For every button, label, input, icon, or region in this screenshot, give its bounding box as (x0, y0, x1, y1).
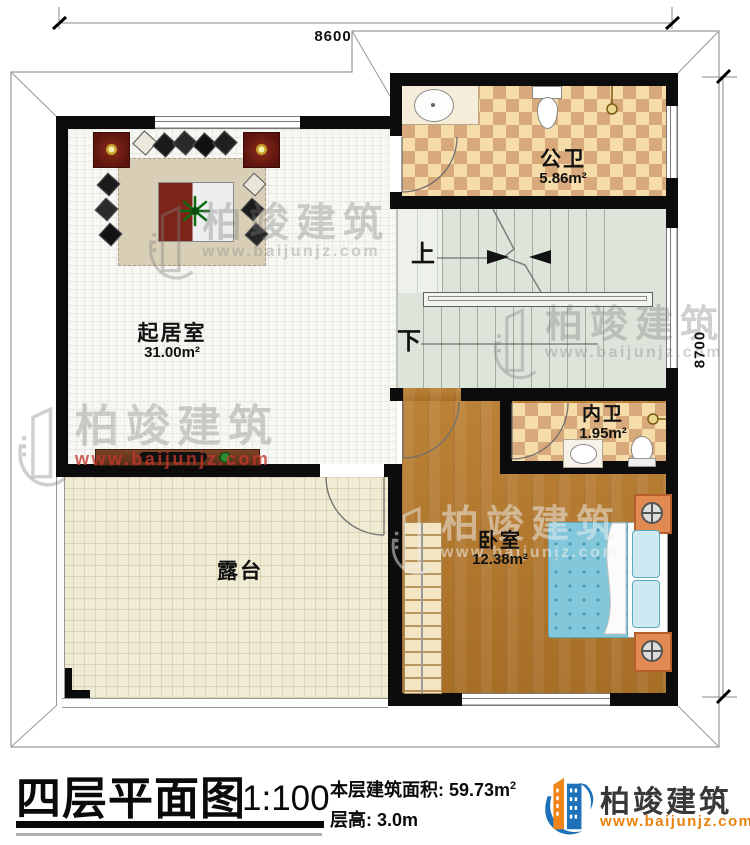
bedroom-label: 卧室 12.38m² (450, 530, 550, 569)
room-name: 公卫 (503, 148, 623, 171)
television (139, 452, 207, 462)
terrace-parapet-left (56, 477, 65, 706)
door-opening-public-bathroom (390, 136, 402, 192)
nightstand-lamp (641, 640, 663, 662)
room-area: 12.38m² (450, 552, 550, 569)
window-bedroom-bottom (462, 693, 610, 706)
inner-bath-sink-counter (563, 439, 603, 468)
company-website: www.baijunjz.com (600, 813, 750, 830)
bed-mattress (548, 522, 628, 638)
plan-scale: 1:100 (242, 779, 330, 819)
floor-area-value: 本层建筑面积: 59.73m (330, 780, 510, 800)
bathroom-sink (414, 89, 454, 122)
nightstand-lamp (641, 502, 663, 524)
door-opening-terrace (320, 464, 384, 477)
company-logo-icon (534, 770, 596, 840)
wall-inner-bathroom-left (500, 401, 512, 466)
window-living-top (155, 116, 300, 129)
dimension-height-label: 8700 (692, 320, 709, 380)
tv-cabinet (95, 449, 260, 466)
nightstand-top (634, 494, 672, 534)
terrace-parapet-bottom (62, 698, 388, 708)
terrace-label: 露台 (198, 560, 282, 583)
cabinet-plant (219, 452, 231, 463)
room-name: 起居室 (122, 322, 222, 345)
nightstand-bottom (634, 632, 672, 672)
title-underline (16, 821, 324, 828)
bed-pillow (632, 580, 660, 628)
window-stair-right (666, 228, 678, 368)
bed-pillow (632, 530, 660, 578)
title-underline-thin (16, 833, 322, 836)
plan-title: 四层平面图 (16, 762, 246, 827)
stair-upper-flight-treads (442, 209, 614, 293)
door-opening-bedroom (403, 388, 461, 401)
room-name: 露台 (198, 560, 282, 583)
public-bathroom-label: 公卫 5.86m² (503, 148, 623, 188)
room-name: 内卫 (553, 405, 653, 426)
room-name: 卧室 (450, 530, 550, 552)
potted-plant (178, 194, 212, 228)
stairs-up-label: 上 (408, 242, 438, 268)
wall-living-left (56, 116, 68, 477)
room-area: 5.86m² (503, 171, 623, 188)
wall-bathroom-top (390, 73, 678, 86)
end-table-left (93, 132, 130, 168)
stair-handrail-inner-line (428, 296, 647, 301)
attic-ladder (404, 522, 442, 694)
stairs-down-label: 下 (394, 329, 424, 355)
dimension-width-label: 8600 (300, 28, 366, 45)
floor-plan-page: 8600 8700 (0, 0, 750, 845)
table-lamp (104, 142, 119, 157)
stair-lower-flight-treads (423, 306, 613, 388)
wall-bathroom-stairs (390, 196, 666, 209)
inner-bath-toilet-base (628, 458, 656, 467)
end-table-right (243, 132, 280, 168)
floor-height-text: 层高: 3.0m (330, 806, 418, 832)
floor-area-text: 本层建筑面积: 59.73m2 (330, 776, 516, 802)
inner-bathroom-label: 内卫 1.95m² (553, 405, 653, 442)
room-area: 1.95m² (553, 426, 653, 443)
terrace-floor (62, 477, 388, 698)
room-area: 31.00m² (122, 345, 222, 362)
inner-bath-sink (570, 444, 597, 464)
window-bathroom-right (666, 106, 678, 178)
floor-area-superscript: 2 (510, 780, 516, 792)
stair-handrail (423, 292, 653, 307)
living-room-label: 起居室 31.00m² (122, 322, 222, 362)
wall-terrace-bedroom (388, 466, 402, 706)
top-dimension-line (53, 7, 679, 29)
table-lamp (254, 142, 269, 157)
